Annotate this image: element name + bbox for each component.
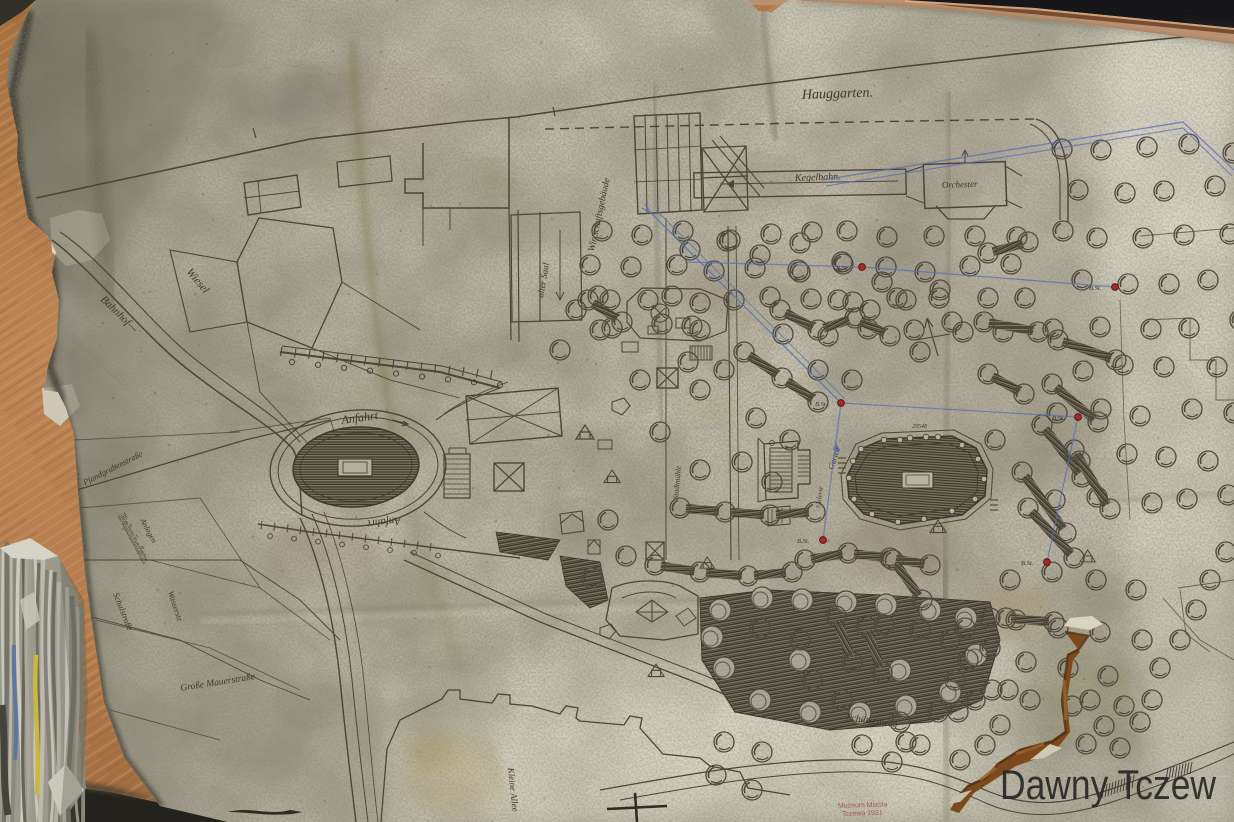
svg-text:B.St.: B.St. (1089, 285, 1102, 292)
svg-text:B.St.: B.St. (815, 401, 828, 408)
svg-text:Tczewa 1931: Tczewa 1931 (842, 810, 883, 818)
svg-text:29548: 29548 (912, 423, 927, 430)
svg-text:B.St.: B.St. (1052, 415, 1065, 422)
svg-text:B.St.: B.St. (797, 538, 810, 545)
svg-text:B.St.: B.St. (836, 265, 849, 272)
svg-text:B.St.: B.St. (1021, 560, 1034, 567)
svg-text:Dawny Tczew: Dawny Tczew (1000, 761, 1217, 808)
svg-text:Orchester: Orchester (942, 179, 978, 190)
svg-text:Hauggarten.: Hauggarten. (801, 86, 874, 104)
